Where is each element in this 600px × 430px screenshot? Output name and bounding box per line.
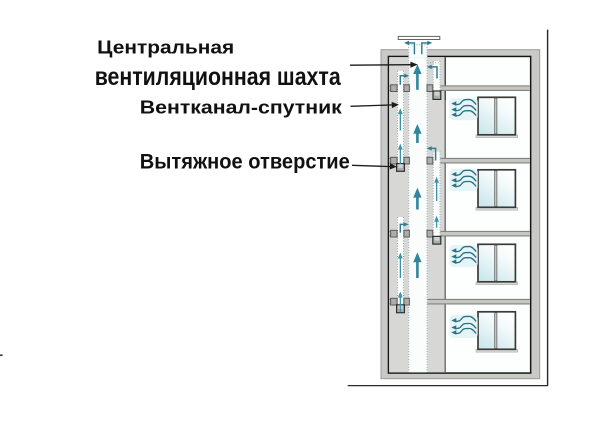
svg-text:Вентканал-спутник: Вентканал-спутник [140,97,343,118]
svg-text:вентиляционная шахта: вентиляционная шахта [95,63,342,91]
svg-text:Центральная: Центральная [97,38,234,58]
svg-text:Вытяжное отверстие: Вытяжное отверстие [140,150,350,174]
